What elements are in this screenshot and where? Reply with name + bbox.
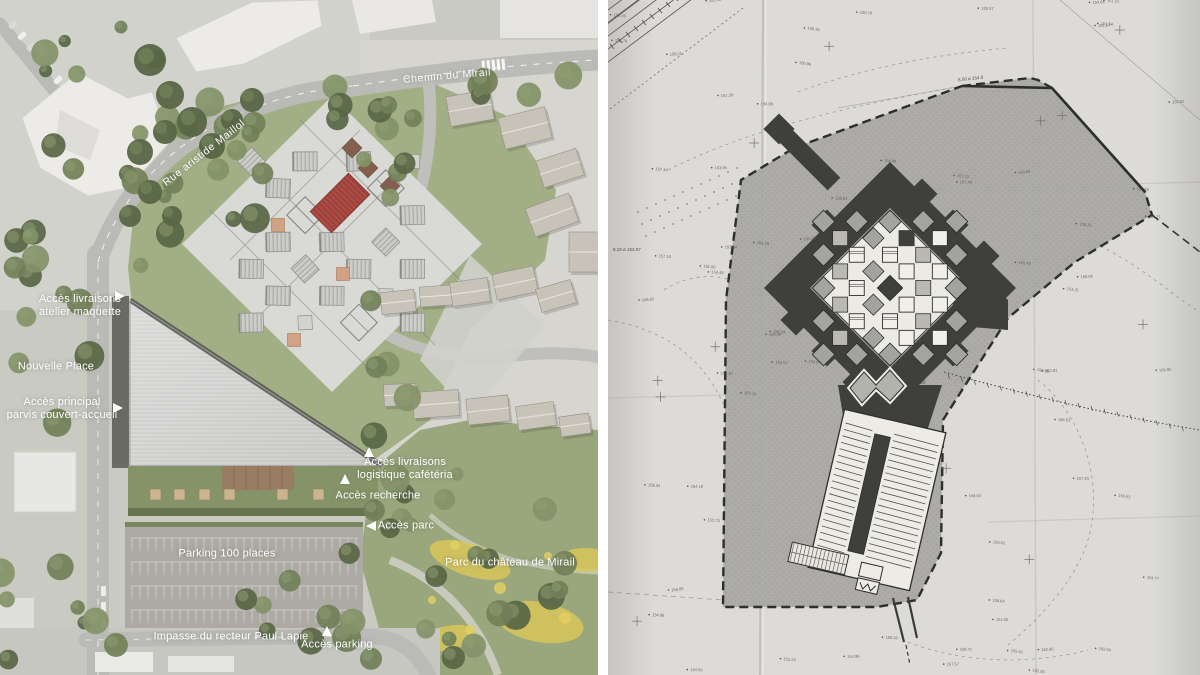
aerial-site-plan-panel: Chemin du MirailRue aristide MaillolAccè… [0, 0, 598, 675]
technical-drawing-panel: 158.79154.98156.88152.64152.23151.39154.… [608, 0, 1200, 675]
aerial-map-art [0, 0, 598, 675]
panel-divider [598, 0, 608, 675]
screenshot-root: Chemin du MirailRue aristide MaillolAccè… [0, 0, 1200, 675]
technical-drawing-art: 158.79154.98156.88152.64152.23151.39154.… [608, 0, 1200, 675]
